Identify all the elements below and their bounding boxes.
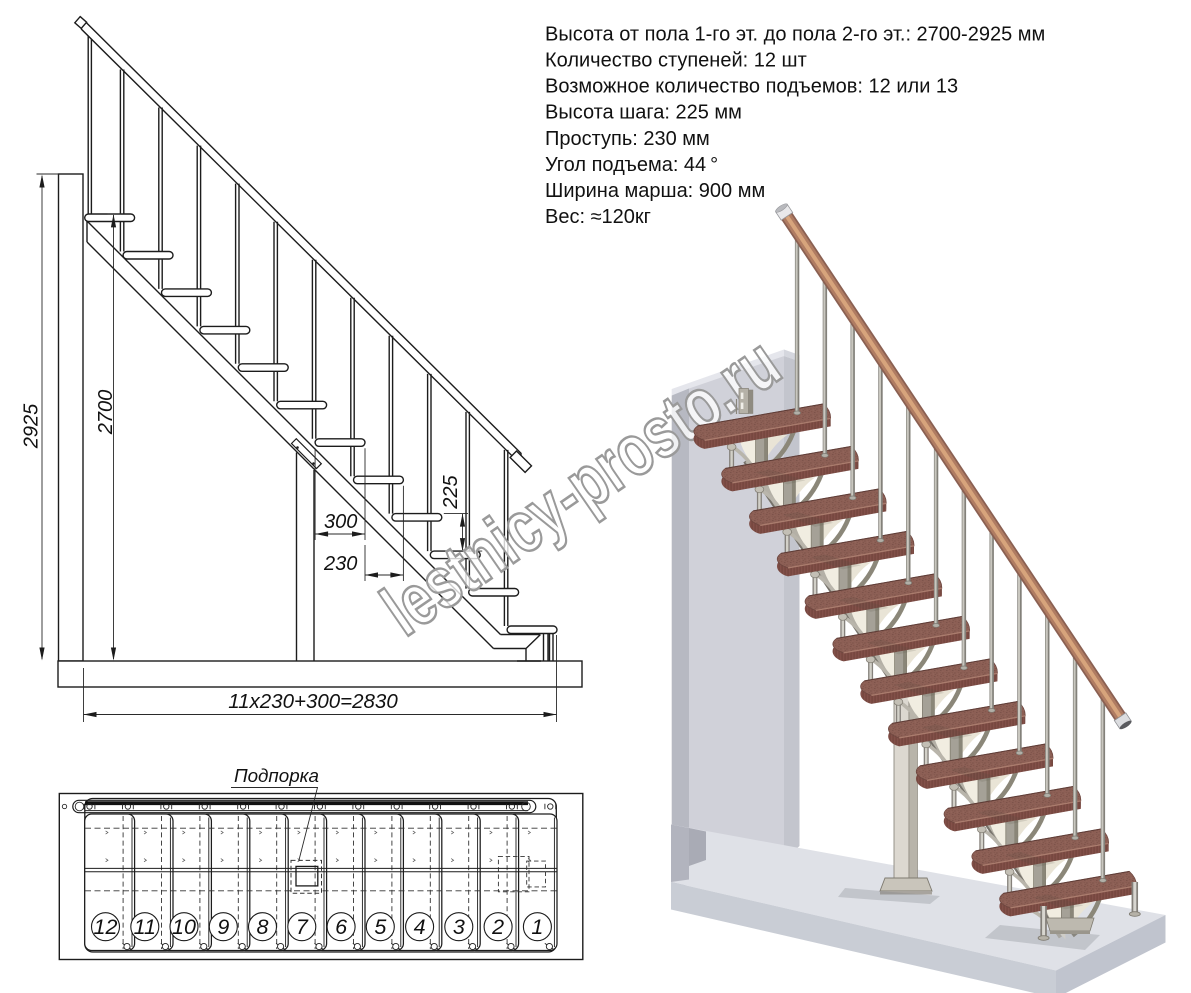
svg-text:6: 6 xyxy=(335,915,347,939)
svg-text:Возможное количество подъемов:: Возможное количество подъемов: 12 или 13 xyxy=(545,76,958,98)
svg-text:2700: 2700 xyxy=(95,390,117,436)
svg-text:300: 300 xyxy=(324,511,357,533)
svg-text:12: 12 xyxy=(94,915,118,939)
svg-text:2925: 2925 xyxy=(21,403,43,449)
svg-text:7: 7 xyxy=(296,915,309,939)
svg-text:2: 2 xyxy=(491,915,504,939)
svg-text:5: 5 xyxy=(374,915,387,939)
svg-text:Проступь: 230 мм: Проступь: 230 мм xyxy=(545,128,710,150)
svg-text:Высота от пола 1-го эт. до пол: Высота от пола 1-го эт. до пола 2-го эт.… xyxy=(545,23,1045,45)
svg-text:225: 225 xyxy=(440,474,462,509)
svg-text:Угол подъема: 44 °: Угол подъема: 44 ° xyxy=(545,154,718,176)
svg-text:9: 9 xyxy=(217,915,229,939)
svg-text:230: 230 xyxy=(323,553,357,575)
svg-text:1: 1 xyxy=(531,915,543,939)
svg-text:10: 10 xyxy=(172,915,196,939)
svg-text:Ширина марша: 900 мм: Ширина марша: 900 мм xyxy=(545,180,765,202)
svg-text:Количество ступеней: 12 шт: Количество ступеней: 12 шт xyxy=(545,50,807,72)
svg-text:4: 4 xyxy=(414,915,426,939)
svg-text:11: 11 xyxy=(134,915,156,939)
svg-text:Подпорка: Подпорка xyxy=(234,765,319,786)
svg-text:11x230+300=2830: 11x230+300=2830 xyxy=(228,690,398,713)
svg-text:Вес: ≈120кг: Вес: ≈120кг xyxy=(545,206,651,228)
svg-text:Высота шага: 225 мм: Высота шага: 225 мм xyxy=(545,102,742,124)
svg-text:8: 8 xyxy=(257,915,269,939)
svg-text:3: 3 xyxy=(453,915,465,939)
